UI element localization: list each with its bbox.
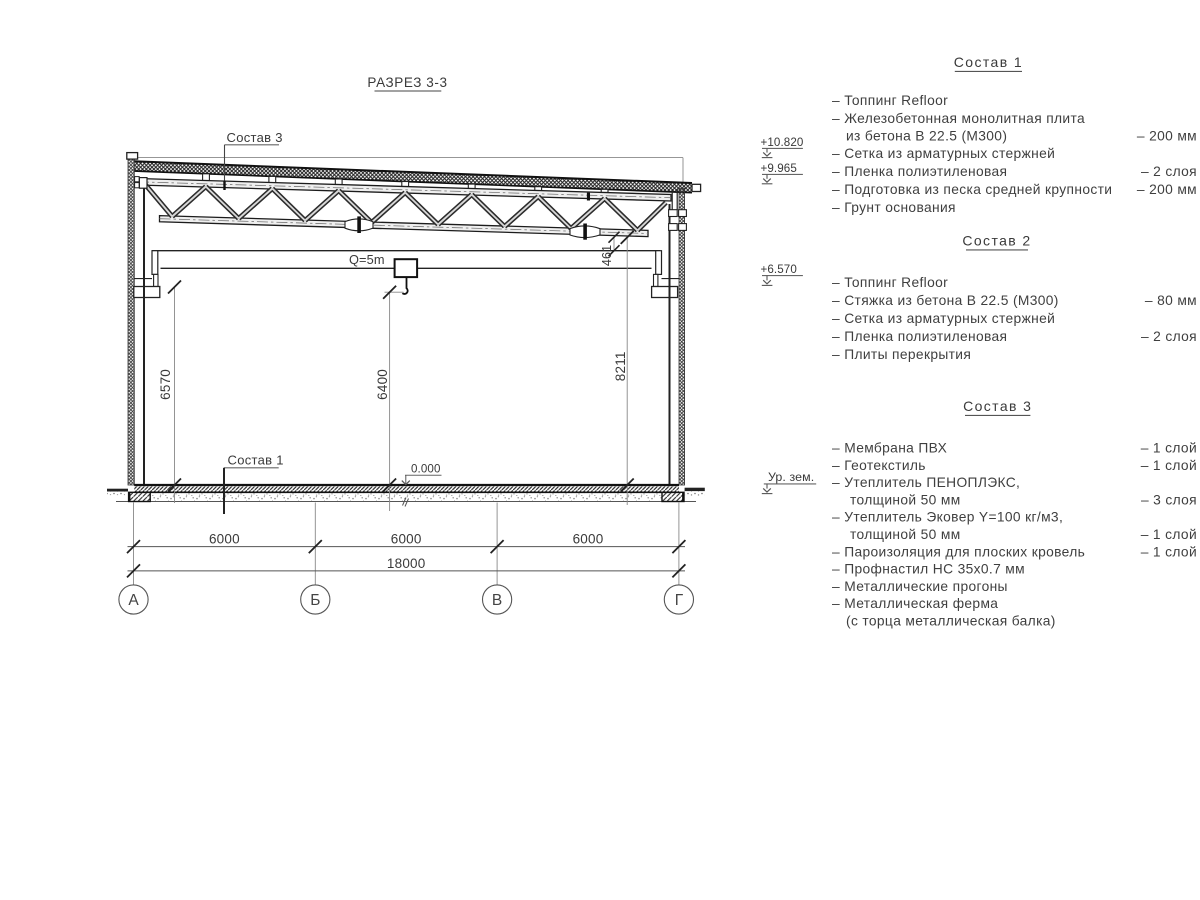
svg-text:– Пленка полиэтиленовая: – Пленка полиэтиленовая — [832, 164, 1007, 179]
svg-text:6570: 6570 — [158, 369, 173, 400]
svg-text:+9.965: +9.965 — [761, 162, 797, 175]
svg-text:– Железобетонная монолитная: – Железобетонная монолитная плита — [832, 111, 1085, 126]
svg-text:– Стяжка из бетона В 22.5 (М3: – Стяжка из бетона В 22.5 (М300) — [832, 293, 1059, 308]
svg-text:8211: 8211 — [613, 351, 628, 381]
svg-text:Состав 3: Состав 3 — [963, 398, 1032, 414]
svg-text:– Металлическая ферма: – Металлическая ферма — [832, 596, 998, 611]
svg-text:– 2 слоя: – 2 слоя — [1141, 329, 1197, 344]
svg-text:– 200 мм: – 200 мм — [1137, 182, 1197, 197]
svg-text:6000: 6000 — [209, 532, 240, 547]
svg-text:Состав 1: Состав 1 — [954, 54, 1023, 70]
svg-text:0.000: 0.000 — [411, 462, 441, 475]
svg-text:6000: 6000 — [391, 532, 422, 547]
svg-text:6000: 6000 — [573, 532, 604, 547]
svg-text:– Пленка полиэтиленовая: – Пленка полиэтиленовая — [832, 329, 1007, 344]
svg-text:– Геотекстиль: – Геотекстиль — [832, 458, 926, 473]
svg-text:– 3 слоя: – 3 слоя — [1141, 492, 1197, 507]
svg-text:+6.570: +6.570 — [761, 263, 797, 276]
svg-text:В: В — [492, 592, 502, 609]
svg-text:Состав 1: Состав 1 — [228, 453, 284, 468]
svg-text:толщиной 50 мм: толщиной 50 мм — [850, 527, 961, 542]
svg-text:18000: 18000 — [387, 556, 426, 571]
svg-text:из бетона В 22.5 (М300): из бетона В 22.5 (М300) — [846, 129, 1007, 144]
svg-text:– 2 слоя: – 2 слоя — [1141, 164, 1197, 179]
svg-text:толщиной 50 мм: толщиной 50 мм — [850, 492, 961, 507]
svg-text:Q=5m: Q=5m — [349, 252, 385, 267]
svg-text:– Сетка из арматурных стержне: – Сетка из арматурных стержней — [832, 311, 1055, 326]
svg-text:– 1 слой: – 1 слой — [1141, 544, 1197, 559]
svg-text:– Утеплитель Эковер Y=100 кг/: – Утеплитель Эковер Y=100 кг/м3, — [832, 510, 1063, 525]
svg-text:РАЗРЕЗ 3-3: РАЗРЕЗ 3-3 — [367, 75, 447, 90]
svg-text:Б: Б — [310, 592, 320, 609]
svg-text:– Грунт основания: – Грунт основания — [832, 200, 956, 215]
svg-text:+10.820: +10.820 — [761, 136, 804, 149]
svg-text:Г: Г — [675, 592, 684, 609]
svg-text:– Подготовка из песка средней: – Подготовка из песка средней крупности — [832, 182, 1112, 197]
svg-text:– 1 слой: – 1 слой — [1141, 527, 1197, 542]
svg-text:– 1 слой: – 1 слой — [1141, 441, 1197, 456]
svg-text:6400: 6400 — [375, 369, 390, 400]
svg-text:– 80 мм: – 80 мм — [1145, 293, 1197, 308]
svg-text:– Плиты перекрытия: – Плиты перекрытия — [832, 347, 971, 362]
svg-text:– Сетка из арматурных стержне: – Сетка из арматурных стержней — [832, 146, 1055, 161]
svg-text:– Мембрана ПВХ: – Мембрана ПВХ — [832, 441, 947, 456]
svg-text:– Топпинг Refloor: – Топпинг Refloor — [832, 93, 948, 108]
svg-text:Состав 3: Состав 3 — [227, 130, 283, 145]
svg-text:– Пароизоляция для плоских кр: – Пароизоляция для плоских кровель — [832, 544, 1085, 559]
svg-text:– Утеплитель ПЕНОПЛЭКС,: – Утеплитель ПЕНОПЛЭКС, — [832, 475, 1020, 490]
svg-text:– 200 мм: – 200 мм — [1137, 129, 1197, 144]
svg-text:А: А — [128, 592, 139, 609]
svg-text:Ур. зем.: Ур. зем. — [768, 470, 814, 484]
svg-text:461: 461 — [600, 245, 614, 266]
svg-text:(с торца металлическая балка): (с торца металлическая балка) — [846, 614, 1056, 629]
svg-text:– 1 слой: – 1 слой — [1141, 458, 1197, 473]
svg-text:– Металлические прогоны: – Металлические прогоны — [832, 579, 1008, 594]
svg-text:– Топпинг Refloor: – Топпинг Refloor — [832, 275, 948, 290]
svg-text:Состав 2: Состав 2 — [962, 233, 1031, 249]
svg-text:– Профнастил НС 35х0.7 мм: – Профнастил НС 35х0.7 мм — [832, 562, 1025, 577]
